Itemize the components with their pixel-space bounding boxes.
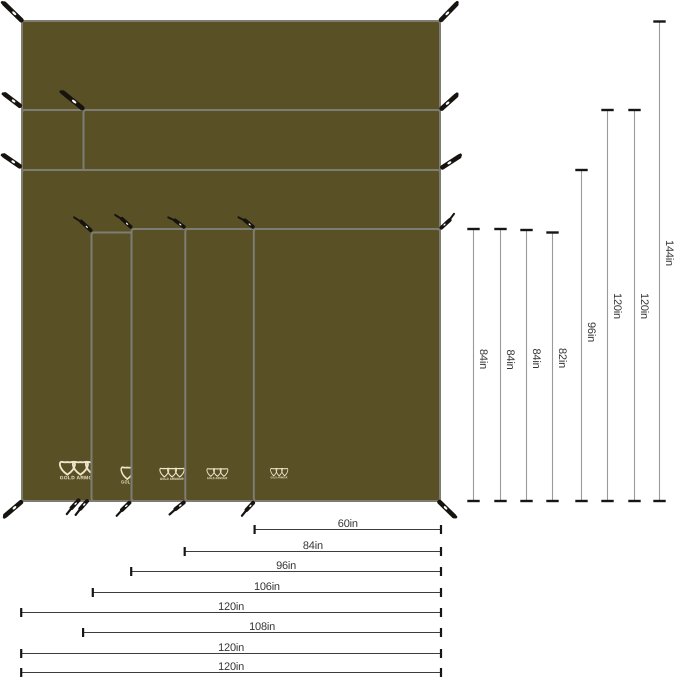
svg-text:120in: 120in: [218, 601, 244, 613]
svg-text:108in: 108in: [249, 621, 275, 633]
svg-text:96in: 96in: [585, 322, 597, 342]
svg-text:82in: 82in: [556, 348, 568, 368]
svg-text:84in: 84in: [477, 349, 489, 369]
svg-text:84in: 84in: [303, 540, 323, 552]
svg-text:144in: 144in: [663, 240, 675, 266]
svg-text:120in: 120in: [638, 293, 650, 319]
svg-text:106in: 106in: [254, 581, 280, 593]
svg-text:60in: 60in: [338, 518, 358, 530]
svg-text:84in: 84in: [504, 349, 516, 369]
svg-text:120in: 120in: [611, 293, 623, 319]
svg-text:120in: 120in: [218, 661, 244, 673]
svg-text:96in: 96in: [276, 560, 296, 572]
svg-text:84in: 84in: [530, 348, 542, 368]
svg-text:120in: 120in: [218, 642, 244, 654]
